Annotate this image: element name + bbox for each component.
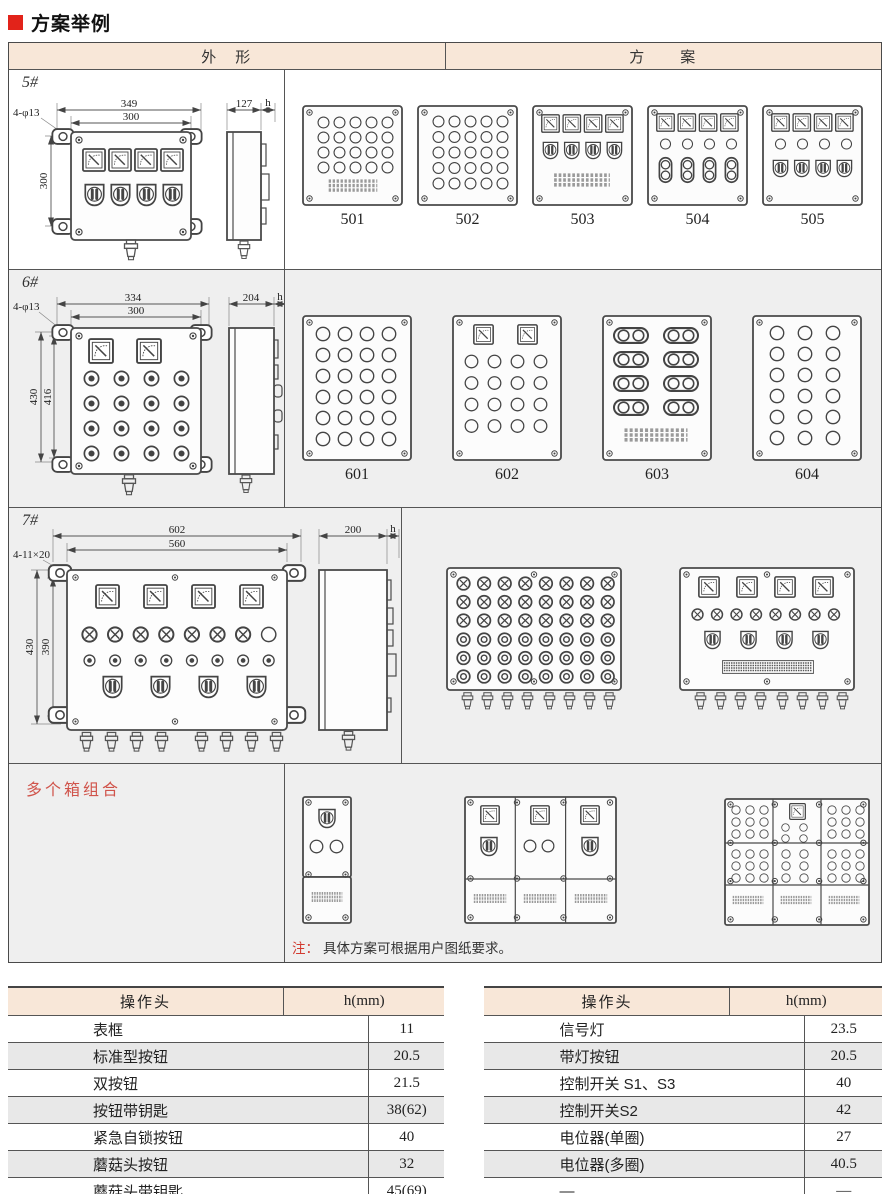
dim-7-outer-width: 602 [169,524,186,536]
dim-7-head-height: h [390,523,396,535]
row-5: 5# 349 300 4-φ13 300 [9,69,881,269]
scheme-note: 注：具体方案可根据用户图纸要求。 [292,937,512,957]
combo-panel-1 [301,795,353,930]
op-head-value: — [805,1178,882,1194]
scheme-panel-7a [445,566,623,716]
table-row: 控制开关 S1、S340 [484,1069,882,1096]
drawing-7-front-side: 602 560 4-11×20 430 390 [9,508,401,760]
scheme-label: 502 [456,211,480,229]
title-bullet-icon [8,15,23,30]
operator-head-tables: 操作头 h(mm) 表框11 标准型按钮20.5 双按钮21.5 按钮带钥匙38… [8,986,882,1194]
operator-head-table-left: 操作头 h(mm) 表框11 标准型按钮20.5 双按钮21.5 按钮带钥匙38… [8,986,444,1194]
table-header-row: 操作头 h(mm) [484,988,882,1015]
dim-6-outer-width: 334 [125,292,142,304]
row-6-label: 6# [22,274,38,292]
scheme-panel-7b [678,566,856,716]
row-combo-shape-cell: 多个箱组合 [9,764,285,962]
table-row: 控制开关S242 [484,1096,882,1123]
dim-6-height-inner: 416 [42,388,54,405]
row-5-shape-cell: 5# 349 300 4-φ13 300 [9,70,285,269]
table-row: 电位器(多圈)40.5 [484,1150,882,1177]
page-title: 方案举例 [31,9,111,36]
dim-5-head-height: h [265,97,271,109]
col-header-scheme: 方 案 [446,43,882,69]
scheme-label: 503 [571,211,595,229]
drawing-6-front-side: 334 300 4-φ13 430 416 [9,270,284,500]
row-5-label: 5# [22,74,38,92]
scheme-panel-501: 501 [301,104,404,229]
scheme-table: 外 形 方 案 5# 349 300 4-φ13 300 [8,42,882,963]
note-prefix: 注： [292,941,319,956]
table-row: 双按钮21.5 [8,1069,444,1096]
row-combo: 多个箱组合 [9,763,881,962]
catalog-page: 方案举例 外 形 方 案 5# 349 300 4-φ13 [0,0,890,1194]
dim-6-head-height: h [277,291,283,303]
row-7-shape-cell: 7# 602 560 4-11×20 430 390 [9,508,402,763]
op-head-value: 23.5 [805,1016,882,1042]
row-6-scheme-cell: 601 602 [285,270,881,507]
table-row: 蘑菇头按钮32 [8,1150,444,1177]
dim-6-inner-width: 300 [128,305,145,317]
dim-5-inner-width: 300 [123,111,140,123]
op-head-value: 38(62) [369,1097,444,1123]
scheme-label: 601 [345,466,369,484]
op-head-value: 11 [369,1016,444,1042]
row-6: 6# 334 300 4-φ13 430 416 [9,269,881,507]
dim-6-depth: 204 [243,292,260,304]
op-head-value: 27 [805,1124,882,1150]
op-head-name: 控制开关S2 [484,1097,805,1123]
table-row: 按钮带钥匙38(62) [8,1096,444,1123]
scheme-table-header: 外 形 方 案 [9,43,881,69]
dim-7-depth: 200 [345,524,362,536]
dim-5-depth: 127 [236,98,253,110]
scheme-panel-601: 601 [301,314,413,484]
op-head-name: 带灯按钮 [484,1043,805,1069]
scheme-panel-603: 603 [601,314,713,484]
op-head-name: 双按钮 [8,1070,369,1096]
op-head-value: 40 [805,1070,882,1096]
scheme-label: 602 [495,466,519,484]
op-head-value: 20.5 [805,1043,882,1069]
table-header-row: 操作头 h(mm) [8,988,444,1015]
col-operator-head: 操作头 [484,988,730,1015]
table-row: 紧急自锁按钮40 [8,1123,444,1150]
dim-5-height: 300 [38,172,50,189]
scheme-panel-503: 503 [531,104,634,229]
scheme-label: 505 [801,211,825,229]
op-head-name: — [484,1178,805,1194]
dim-7-inner-width: 560 [169,538,186,550]
table-row: 标准型按钮20.5 [8,1042,444,1069]
dim-7-holes: 4-11×20 [13,549,50,561]
op-head-name: 蘑菇头带钥匙 [8,1178,369,1194]
op-head-value: 40 [369,1124,444,1150]
op-head-name: 按钮带钥匙 [8,1097,369,1123]
row-6-shape-cell: 6# 334 300 4-φ13 430 416 [9,270,285,507]
op-head-value: 42 [805,1097,882,1123]
scheme-label: 504 [686,211,710,229]
op-head-name: 信号灯 [484,1016,805,1042]
row-7: 7# 602 560 4-11×20 430 390 [9,507,881,763]
col-h-mm: h(mm) [284,988,444,1015]
col-header-shape: 外 形 [9,43,446,69]
dim-7-height-inner: 390 [40,638,52,655]
op-head-name: 电位器(单圈) [484,1124,805,1150]
dim-6-height-outer: 430 [28,388,40,405]
op-head-value: 21.5 [369,1070,444,1096]
dim-7-height-outer: 430 [24,638,36,655]
table-row: 信号灯23.5 [484,1015,882,1042]
scheme-panel-502: 502 [416,104,519,229]
op-head-name: 标准型按钮 [8,1043,369,1069]
note-text: 具体方案可根据用户图纸要求。 [323,941,512,956]
scheme-panel-602: 602 [451,314,563,484]
table-row: 带灯按钮20.5 [484,1042,882,1069]
row-combo-label: 多个箱组合 [26,776,121,800]
op-head-name: 蘑菇头按钮 [8,1151,369,1177]
table-row: —— [484,1177,882,1194]
row-5-scheme-cell: 501 502 [285,70,881,269]
scheme-panel-604: 604 [751,314,863,484]
col-operator-head: 操作头 [8,988,284,1015]
scheme-label: 603 [645,466,669,484]
scheme-label: 501 [341,211,365,229]
dim-5-outer-width: 349 [121,98,138,110]
dim-6-holes: 4-φ13 [13,301,40,313]
scheme-panel-504: 504 [646,104,749,229]
table-row: 表框11 [8,1015,444,1042]
row-7-scheme-cell [402,508,881,763]
drawing-5-front-side: 349 300 4-φ13 300 [9,70,284,262]
op-head-value: 32 [369,1151,444,1177]
table-row: 电位器(单圈)27 [484,1123,882,1150]
operator-head-table-right: 操作头 h(mm) 信号灯23.5 带灯按钮20.5 控制开关 S1、S340 … [484,986,882,1194]
op-head-name: 表框 [8,1016,369,1042]
combo-panel-3 [723,797,871,932]
op-head-name: 紧急自锁按钮 [8,1124,369,1150]
op-head-value: 20.5 [369,1043,444,1069]
scheme-label: 604 [795,466,819,484]
op-head-name: 控制开关 S1、S3 [484,1070,805,1096]
op-head-value: 45(69) [369,1178,444,1194]
scheme-panel-505: 505 [761,104,864,229]
row-combo-scheme-cell: 注：具体方案可根据用户图纸要求。 [285,764,881,962]
col-h-mm: h(mm) [730,988,882,1015]
dim-5-holes: 4-φ13 [13,107,40,119]
op-head-name: 电位器(多圈) [484,1151,805,1177]
table-row: 蘑菇头带钥匙45(69) [8,1177,444,1194]
op-head-value: 40.5 [805,1151,882,1177]
row-7-label: 7# [22,512,38,530]
combo-panel-2 [463,795,618,930]
title-bar: 方案举例 [0,0,890,42]
